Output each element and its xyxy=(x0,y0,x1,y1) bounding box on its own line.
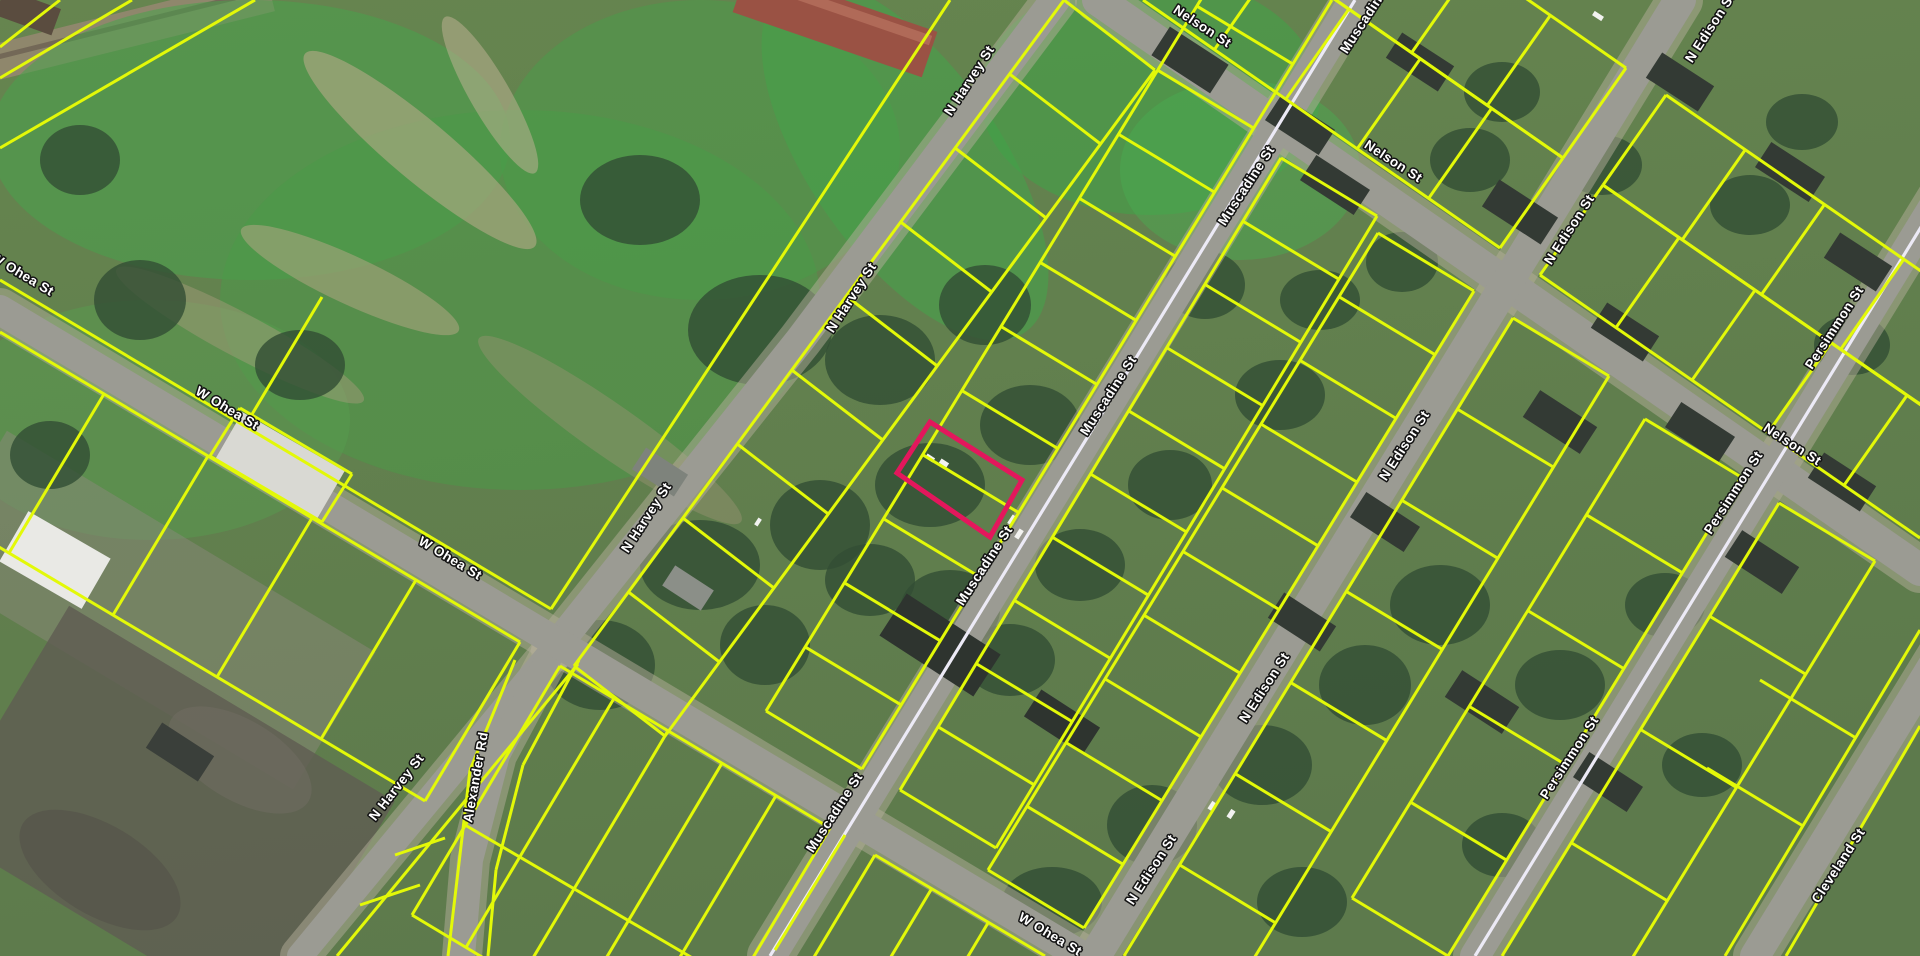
map-canvas[interactable]: N Harvey StN Harvey StN Harvey StN Harve… xyxy=(0,0,1920,956)
map-viewport[interactable]: N Harvey StN Harvey StN Harvey StN Harve… xyxy=(0,0,1920,956)
